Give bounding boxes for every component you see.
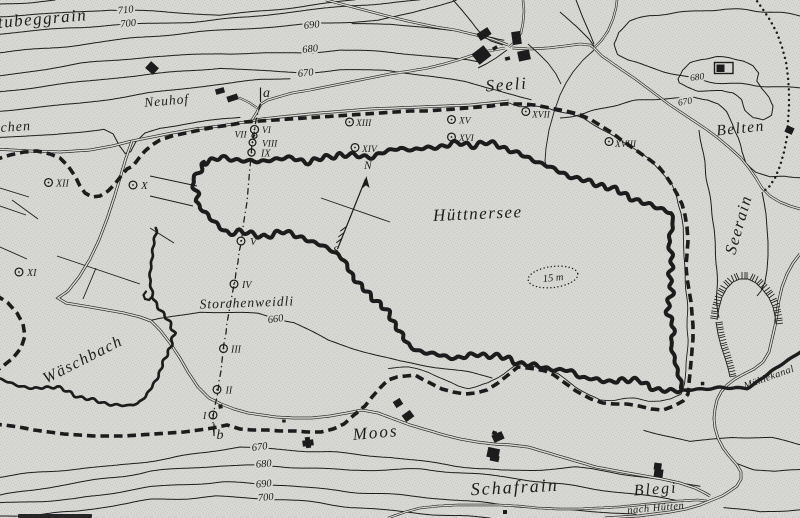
svg-text:Seeli: Seeli bbox=[485, 74, 528, 96]
svg-text:XV: XV bbox=[458, 117, 472, 127]
svg-text:I: I bbox=[202, 411, 207, 422]
svg-text:680: 680 bbox=[689, 72, 705, 84]
svg-text:II: II bbox=[225, 386, 233, 397]
svg-text:XVII: XVII bbox=[531, 111, 551, 121]
svg-text:700: 700 bbox=[257, 492, 274, 504]
svg-text:XII: XII bbox=[55, 179, 69, 190]
svg-text:XVI: XVI bbox=[458, 134, 475, 144]
svg-text:680: 680 bbox=[255, 458, 272, 470]
svg-text:690: 690 bbox=[303, 19, 321, 32]
svg-text:680: 680 bbox=[302, 43, 320, 56]
svg-text:a: a bbox=[263, 86, 270, 101]
svg-text:XIV: XIV bbox=[361, 145, 378, 155]
svg-text:N: N bbox=[363, 160, 373, 172]
svg-text:XVIII: XVIII bbox=[614, 140, 637, 150]
svg-text:XI: XI bbox=[26, 268, 37, 279]
svg-text:670: 670 bbox=[297, 67, 315, 80]
svg-text:IX: IX bbox=[260, 149, 271, 160]
svg-text:Moos: Moos bbox=[351, 421, 399, 444]
svg-text:690: 690 bbox=[255, 478, 272, 490]
svg-text:Hüttnersee: Hüttnersee bbox=[432, 202, 523, 225]
svg-text:XIII: XIII bbox=[355, 119, 372, 129]
svg-text:VI: VI bbox=[262, 126, 272, 136]
svg-text:X: X bbox=[140, 180, 149, 192]
svg-text:15 m: 15 m bbox=[542, 272, 564, 285]
svg-text:S: S bbox=[333, 245, 339, 257]
svg-text:III: III bbox=[230, 345, 242, 356]
svg-text:chen: chen bbox=[0, 119, 31, 136]
svg-text:670: 670 bbox=[251, 441, 269, 454]
svg-text:b: b bbox=[217, 428, 224, 443]
svg-text:710: 710 bbox=[117, 4, 135, 17]
svg-text:VII: VII bbox=[235, 131, 248, 141]
svg-text:660: 660 bbox=[267, 313, 285, 326]
svg-text:Blegi: Blegi bbox=[633, 480, 678, 500]
svg-text:700: 700 bbox=[120, 18, 138, 31]
